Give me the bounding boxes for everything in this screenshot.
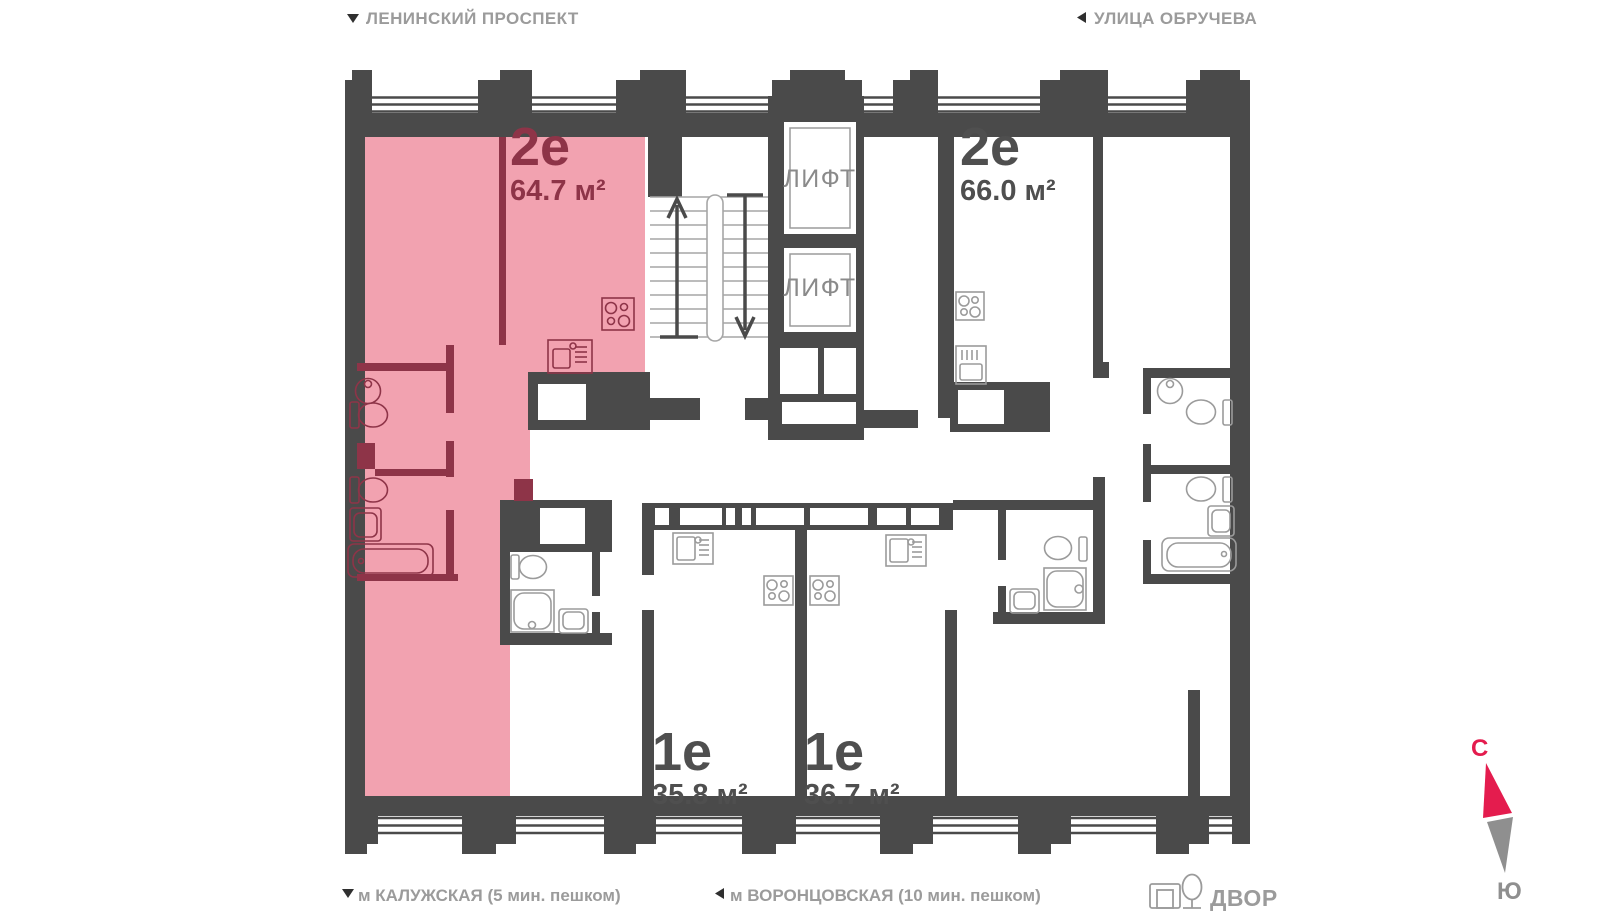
toilet-icon [1045,537,1088,562]
stair-arrow-up-icon [660,199,698,337]
metro-vorontsovskaya: м ВОРОНЦОВСКАЯ (10 мин. пешком) [730,886,1041,905]
apartment-64-area: 64.7 м² [510,175,606,207]
apartment-35-type: 1е [652,722,712,782]
toilet-icon [1187,477,1233,502]
metro-kaluzhskaya: м КАЛУЖСКАЯ (5 мин. пешком) [358,886,621,905]
compass-needle-south [1487,817,1513,873]
apartment-35-area: 35.8 м² [652,779,748,811]
apartment-66-type: 2е [960,117,1020,177]
floor-plan: 2е 64.7 м² 2е 66.0 м² 1е 35.8 м² 1е 36.7… [0,0,1600,920]
apartment-66-area: 66.0 м² [960,175,1056,207]
compass-south-label: Ю [1497,878,1522,905]
arrow-down-icon [342,889,354,898]
yard-icon [1150,875,1202,909]
yard-label: ДВОР [1210,885,1278,911]
shower-icon [511,590,554,632]
compass-north-label: С [1471,735,1488,762]
compass-icon: С Ю [1471,735,1522,905]
sink-icon [559,609,588,633]
bathtub-icon [1162,538,1236,571]
floorplan-page: 2е 64.7 м² 2е 66.0 м² 1е 35.8 м² 1е 36.7… [0,0,1600,920]
arrow-down-icon [347,14,359,23]
apartment-36-type: 1е [804,722,864,782]
compass-needle-north [1483,763,1512,818]
stairs [650,195,768,341]
arrow-left-icon [1077,12,1086,23]
arrow-left-icon [715,888,724,899]
elevator-2-label: ЛИФТ [783,274,856,302]
stair-arrow-down-icon [727,195,763,336]
street-top-left: ЛЕНИНСКИЙ ПРОСПЕКТ [366,9,579,28]
shower-icon [1044,568,1086,610]
stair-rail [707,195,723,341]
apartment-36-area: 36.7 м² [804,779,900,811]
elevator-1-label: ЛИФТ [783,165,856,193]
apartment-64-type: 2е [510,117,570,177]
sink-icon [1010,589,1039,613]
street-top-right: УЛИЦА ОБРУЧЕВА [1094,9,1257,28]
toilet-icon [511,555,547,579]
